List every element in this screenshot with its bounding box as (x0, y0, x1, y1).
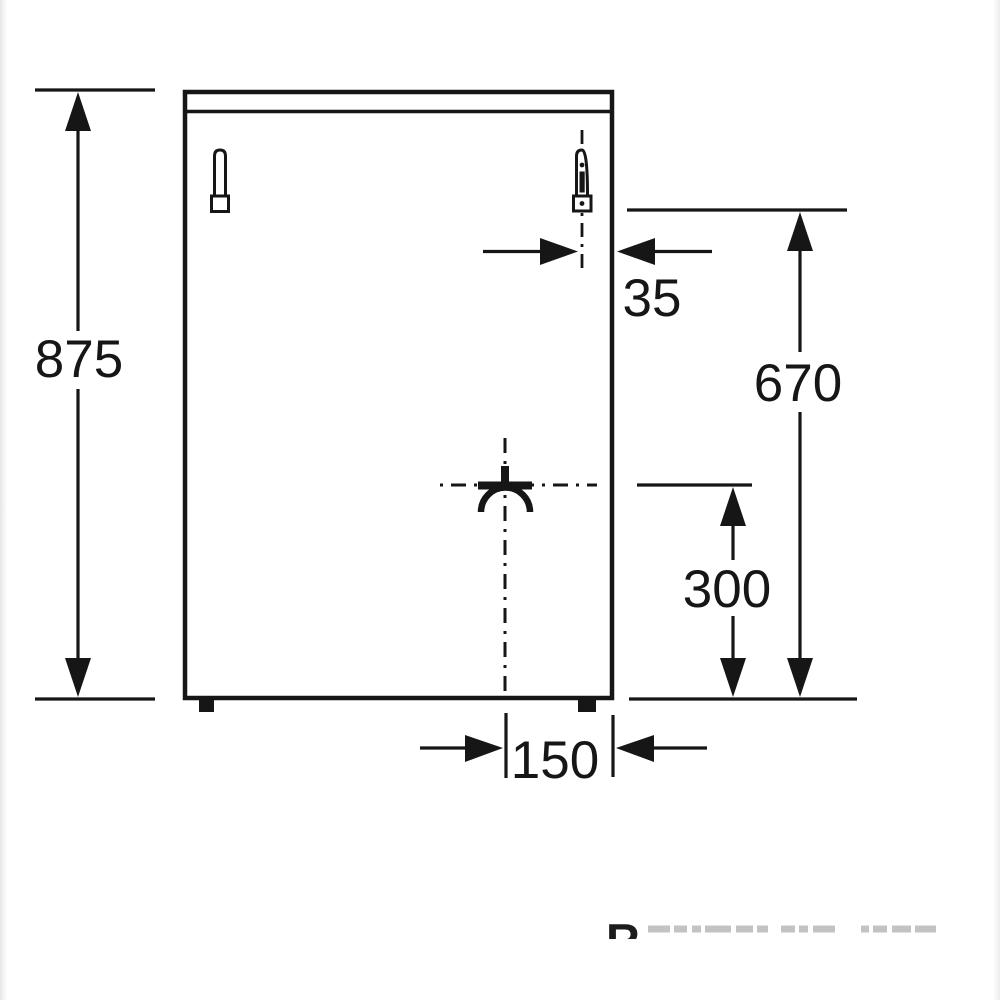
dimension-150: 150 (420, 713, 707, 790)
dim-label-670: 670 (754, 354, 842, 413)
dim-label-300: 300 (683, 560, 771, 619)
arrow-left-icon (617, 238, 655, 265)
diagram-page: 875 670 300 35 (0, 0, 1000, 1000)
fitting-dot-upper (580, 163, 585, 168)
appliance-foot-left (199, 699, 214, 712)
appliance-outline (184, 92, 613, 712)
wall-bracket-left-icon (212, 150, 229, 212)
watermark: R (606, 914, 936, 967)
dimension-300: 300 (629, 485, 857, 699)
arrow-down-icon (787, 658, 813, 697)
arrow-up-icon (65, 92, 91, 131)
appliance-foot-right (578, 699, 596, 712)
dim-label-35: 35 (623, 269, 682, 328)
dimension-875: 875 (35, 90, 155, 699)
arrow-up-icon (720, 487, 746, 526)
arrow-down-icon (720, 658, 746, 697)
arrow-left-icon (616, 735, 654, 762)
appliance-body-rect (185, 92, 612, 698)
fitting-dot-lower (580, 201, 585, 206)
watermark-letter: R (606, 914, 640, 967)
arrow-down-icon (65, 658, 91, 697)
dim-label-150: 150 (511, 731, 599, 790)
arrow-up-icon (787, 212, 813, 251)
fitting-hatch-bar (580, 172, 585, 193)
dim-label-875: 875 (35, 330, 123, 389)
arrow-right-icon (465, 735, 503, 762)
dimension-diagram-svg: 875 670 300 35 (0, 0, 1000, 1000)
